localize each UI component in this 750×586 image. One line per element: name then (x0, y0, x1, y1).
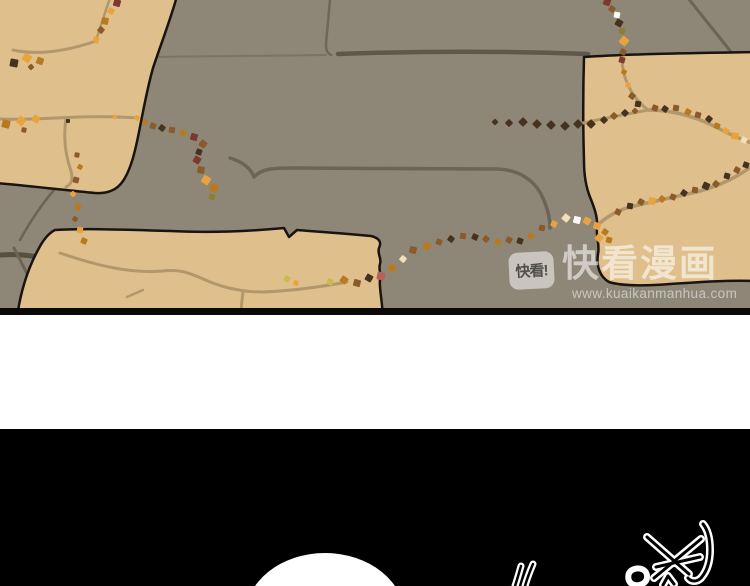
petal (293, 280, 299, 286)
petal (74, 152, 80, 158)
petal (376, 271, 385, 280)
comic-page: 快看! 快看漫画 www.kuaikanmanhua.com (0, 0, 750, 586)
petal (169, 127, 176, 134)
black-background (0, 429, 750, 586)
petal (627, 203, 634, 210)
petal (731, 132, 739, 140)
comic-panel: 快看! 快看漫画 www.kuaikanmanhua.com (0, 0, 750, 315)
black-panel-drawing (0, 429, 750, 586)
slab-right (583, 52, 750, 285)
panel-gutter (0, 315, 750, 429)
petal (460, 233, 467, 240)
panel-border (0, 308, 750, 315)
petal (21, 127, 27, 133)
slab-bottom-left (17, 228, 383, 315)
petal (77, 227, 84, 234)
petal (9, 58, 18, 67)
petal (66, 119, 70, 123)
petal (539, 225, 546, 232)
petal (197, 166, 205, 174)
petal (692, 187, 699, 194)
petal (635, 101, 642, 108)
petal (673, 105, 680, 112)
black-panel (0, 429, 750, 586)
petal (614, 12, 621, 19)
panel-drawing (0, 0, 750, 315)
petal (101, 17, 109, 25)
